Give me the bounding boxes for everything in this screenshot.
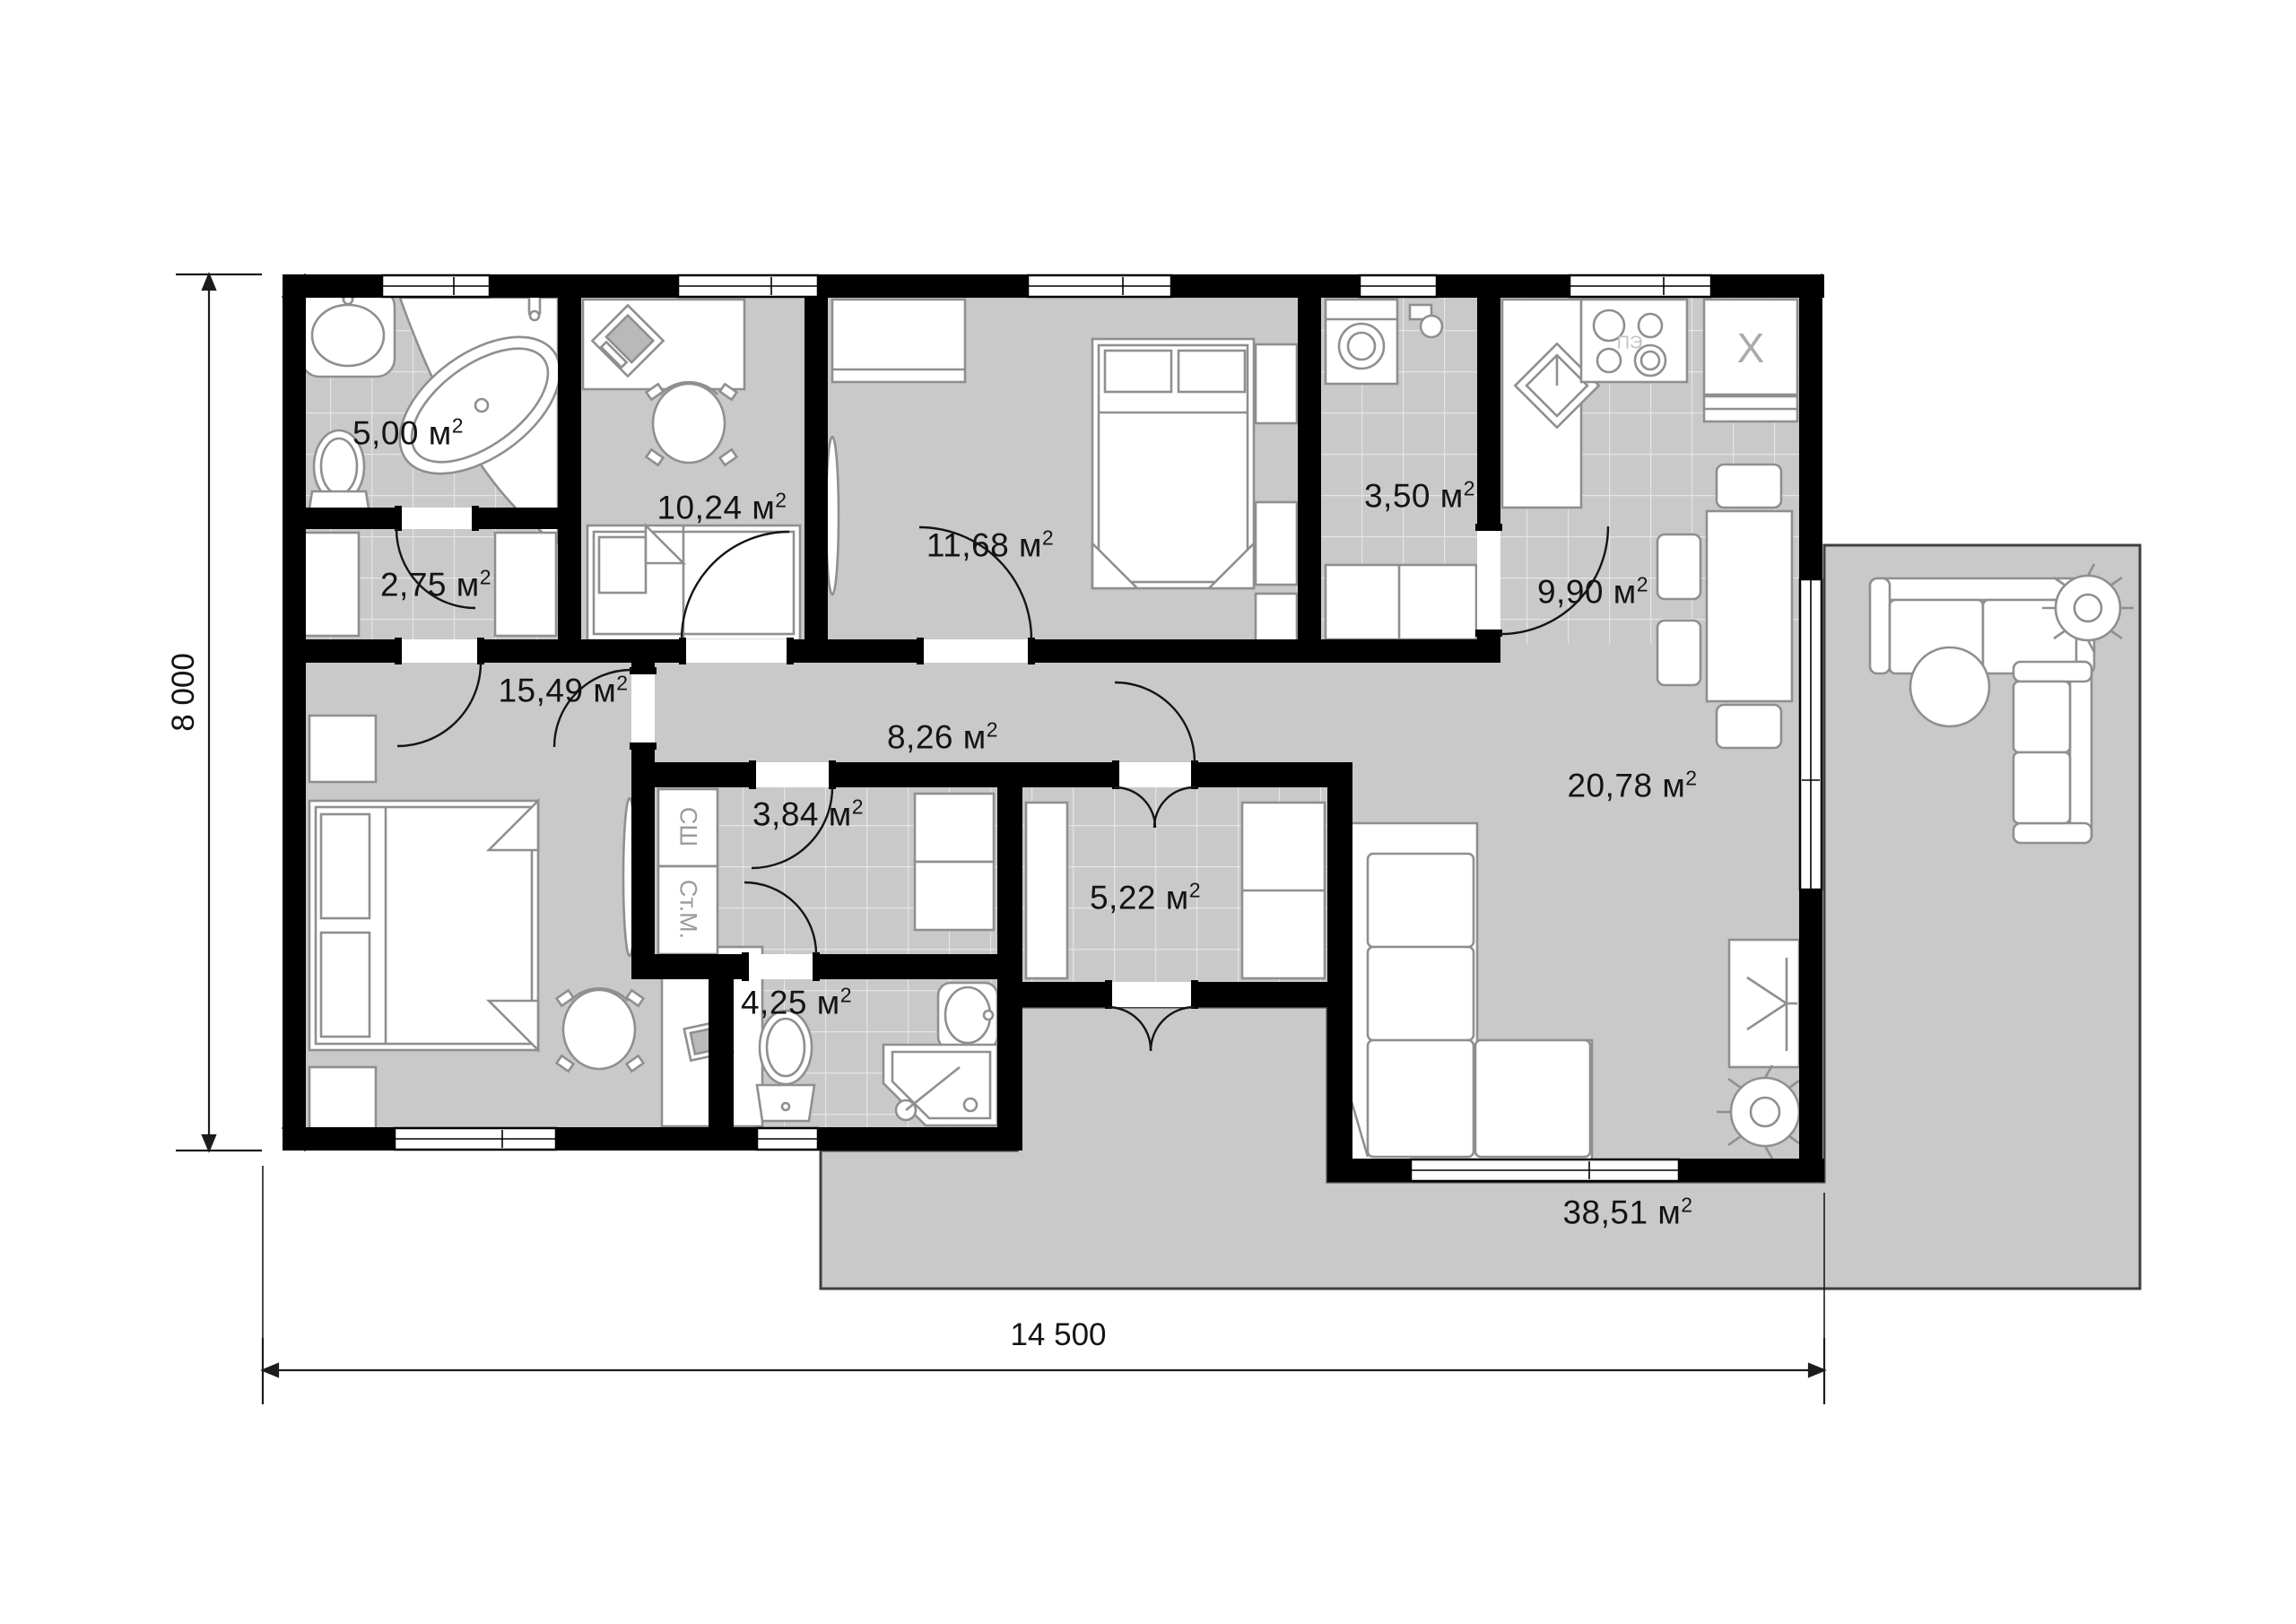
nightstand-icon xyxy=(1256,344,1297,423)
room-label-kids-room: 10,24 м2 xyxy=(657,488,787,526)
wardrobe-icon xyxy=(1026,803,1067,978)
wardrobe-icon xyxy=(495,533,556,636)
washing-machine-icon xyxy=(1326,300,1397,384)
room-label-entry: 5,22 м2 xyxy=(1090,878,1201,916)
room-label-bathroom-2: 3,50 м2 xyxy=(1364,476,1475,515)
washing-machine-label: Ст.М. xyxy=(674,880,702,939)
dimension-height: 8 000 xyxy=(166,653,202,732)
room-label-living-room: 20,78 м2 xyxy=(1567,766,1697,804)
toilet-icon xyxy=(757,1011,814,1121)
wash-basin-icon xyxy=(938,983,997,1049)
room-label-bathroom-1: 5,00 м2 xyxy=(352,413,464,452)
nightstand-icon xyxy=(309,1067,376,1133)
room-label-bathroom-3: 4,25 м2 xyxy=(741,983,852,1021)
room-label-laundry: 3,84 м2 xyxy=(752,795,864,833)
wardrobe-icon xyxy=(915,794,994,862)
stove-label: ПЭ xyxy=(1617,334,1643,354)
refrigerator-label: X xyxy=(1737,324,1765,372)
floor-plan-page: 5,00 м2 2,75 м2 10,24 м2 11,68 м2 3,50 м… xyxy=(0,0,2296,1624)
chair-icon xyxy=(1657,621,1700,685)
chair-icon xyxy=(1717,465,1781,508)
wardrobe-icon xyxy=(832,300,965,382)
wardrobe-icon xyxy=(915,862,994,930)
wardrobe-icon xyxy=(1242,803,1325,978)
double-bed-icon xyxy=(309,801,538,1050)
round-table-icon xyxy=(1910,647,1989,726)
dining-table-icon xyxy=(1707,511,1792,701)
vanity-unit-icon xyxy=(1326,565,1476,639)
room-label-bedroom: 11,68 м2 xyxy=(926,525,1054,564)
wardrobe-icon xyxy=(300,533,359,636)
nightstand-icon xyxy=(1256,502,1297,585)
shower-cabin-icon xyxy=(883,1045,997,1125)
chair-icon xyxy=(1657,534,1700,599)
drying-cabinet-label: СШ xyxy=(674,807,702,847)
tv-stand-icon xyxy=(1729,940,1799,1067)
room-label-kitchen: 9,90 м2 xyxy=(1537,572,1648,611)
room-label-dressing: 2,75 м2 xyxy=(380,565,491,604)
room-label-master-bedroom: 15,49 м2 xyxy=(498,671,628,709)
outdoor-sofa-icon xyxy=(2013,662,2092,843)
dimension-width: 14 500 xyxy=(1010,1317,1106,1353)
double-bed-icon xyxy=(1092,339,1254,588)
single-bed-icon xyxy=(587,525,800,640)
mirror-icon xyxy=(826,437,839,595)
room-label-hallway: 8,26 м2 xyxy=(887,717,998,756)
room-label-terrace: 38,51 м2 xyxy=(1562,1193,1692,1231)
floor-plan-drawing xyxy=(0,0,2296,1624)
chair-icon xyxy=(1717,705,1781,748)
nightstand-icon xyxy=(309,716,376,782)
